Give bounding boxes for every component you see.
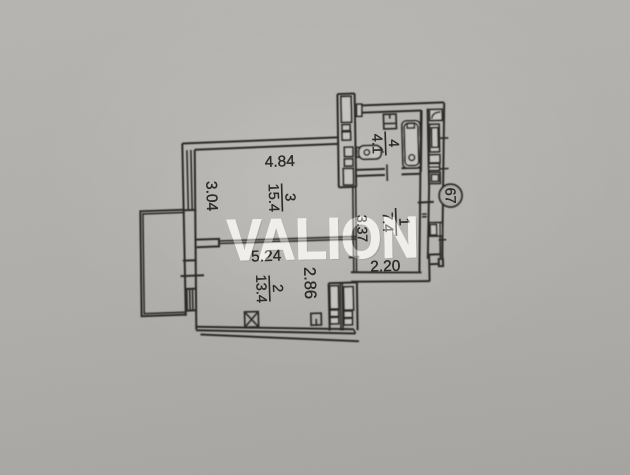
- svg-text:67: 67: [441, 187, 457, 204]
- svg-text:VALION: VALION: [226, 205, 419, 273]
- svg-text:3.04: 3.04: [202, 181, 220, 212]
- svg-text:13.4: 13.4: [252, 274, 269, 303]
- svg-text:4.84: 4.84: [264, 153, 295, 171]
- svg-text:2: 2: [269, 284, 285, 293]
- svg-text:3: 3: [281, 193, 297, 202]
- svg-text:4: 4: [385, 139, 401, 148]
- svg-text:4.1: 4.1: [368, 133, 385, 154]
